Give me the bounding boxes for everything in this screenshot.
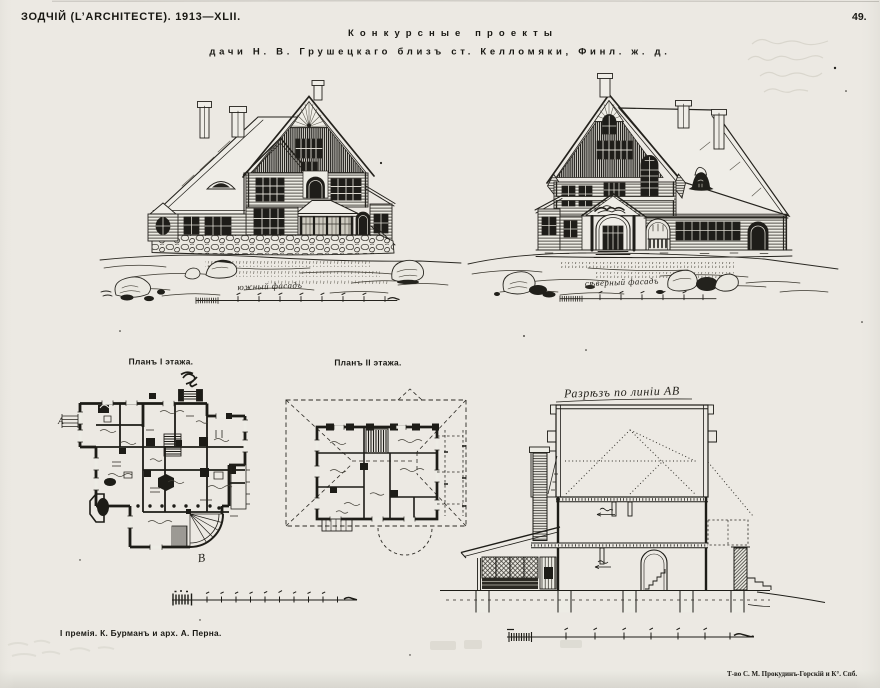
svg-text:I премія. К. Бурманъ и арх. А.: I премія. К. Бурманъ и арх. А. Перна.	[60, 628, 222, 638]
svg-text:Планъ II этажа.: Планъ II этажа.	[334, 357, 401, 367]
svg-text:дачи Н. В. Грушецкаго близъ ст: дачи Н. В. Грушецкаго близъ ст. Келломяк…	[209, 47, 670, 58]
svg-text:Конкурсные проекты: Конкурсные проекты	[348, 28, 558, 39]
svg-text:A: A	[57, 416, 64, 426]
svg-text:ЗОДЧІЙ (L’ARCHITECTE). 1913—XL: ЗОДЧІЙ (L’ARCHITECTE). 1913—XLII.	[21, 10, 241, 23]
svg-text:Т-во С. М. Прокудинъ-Горскій и: Т-во С. М. Прокудинъ-Горскій и К°. Спб.	[727, 670, 857, 678]
svg-text:Планъ I этажа.: Планъ I этажа.	[129, 356, 194, 366]
svg-text:49.: 49.	[852, 11, 867, 23]
